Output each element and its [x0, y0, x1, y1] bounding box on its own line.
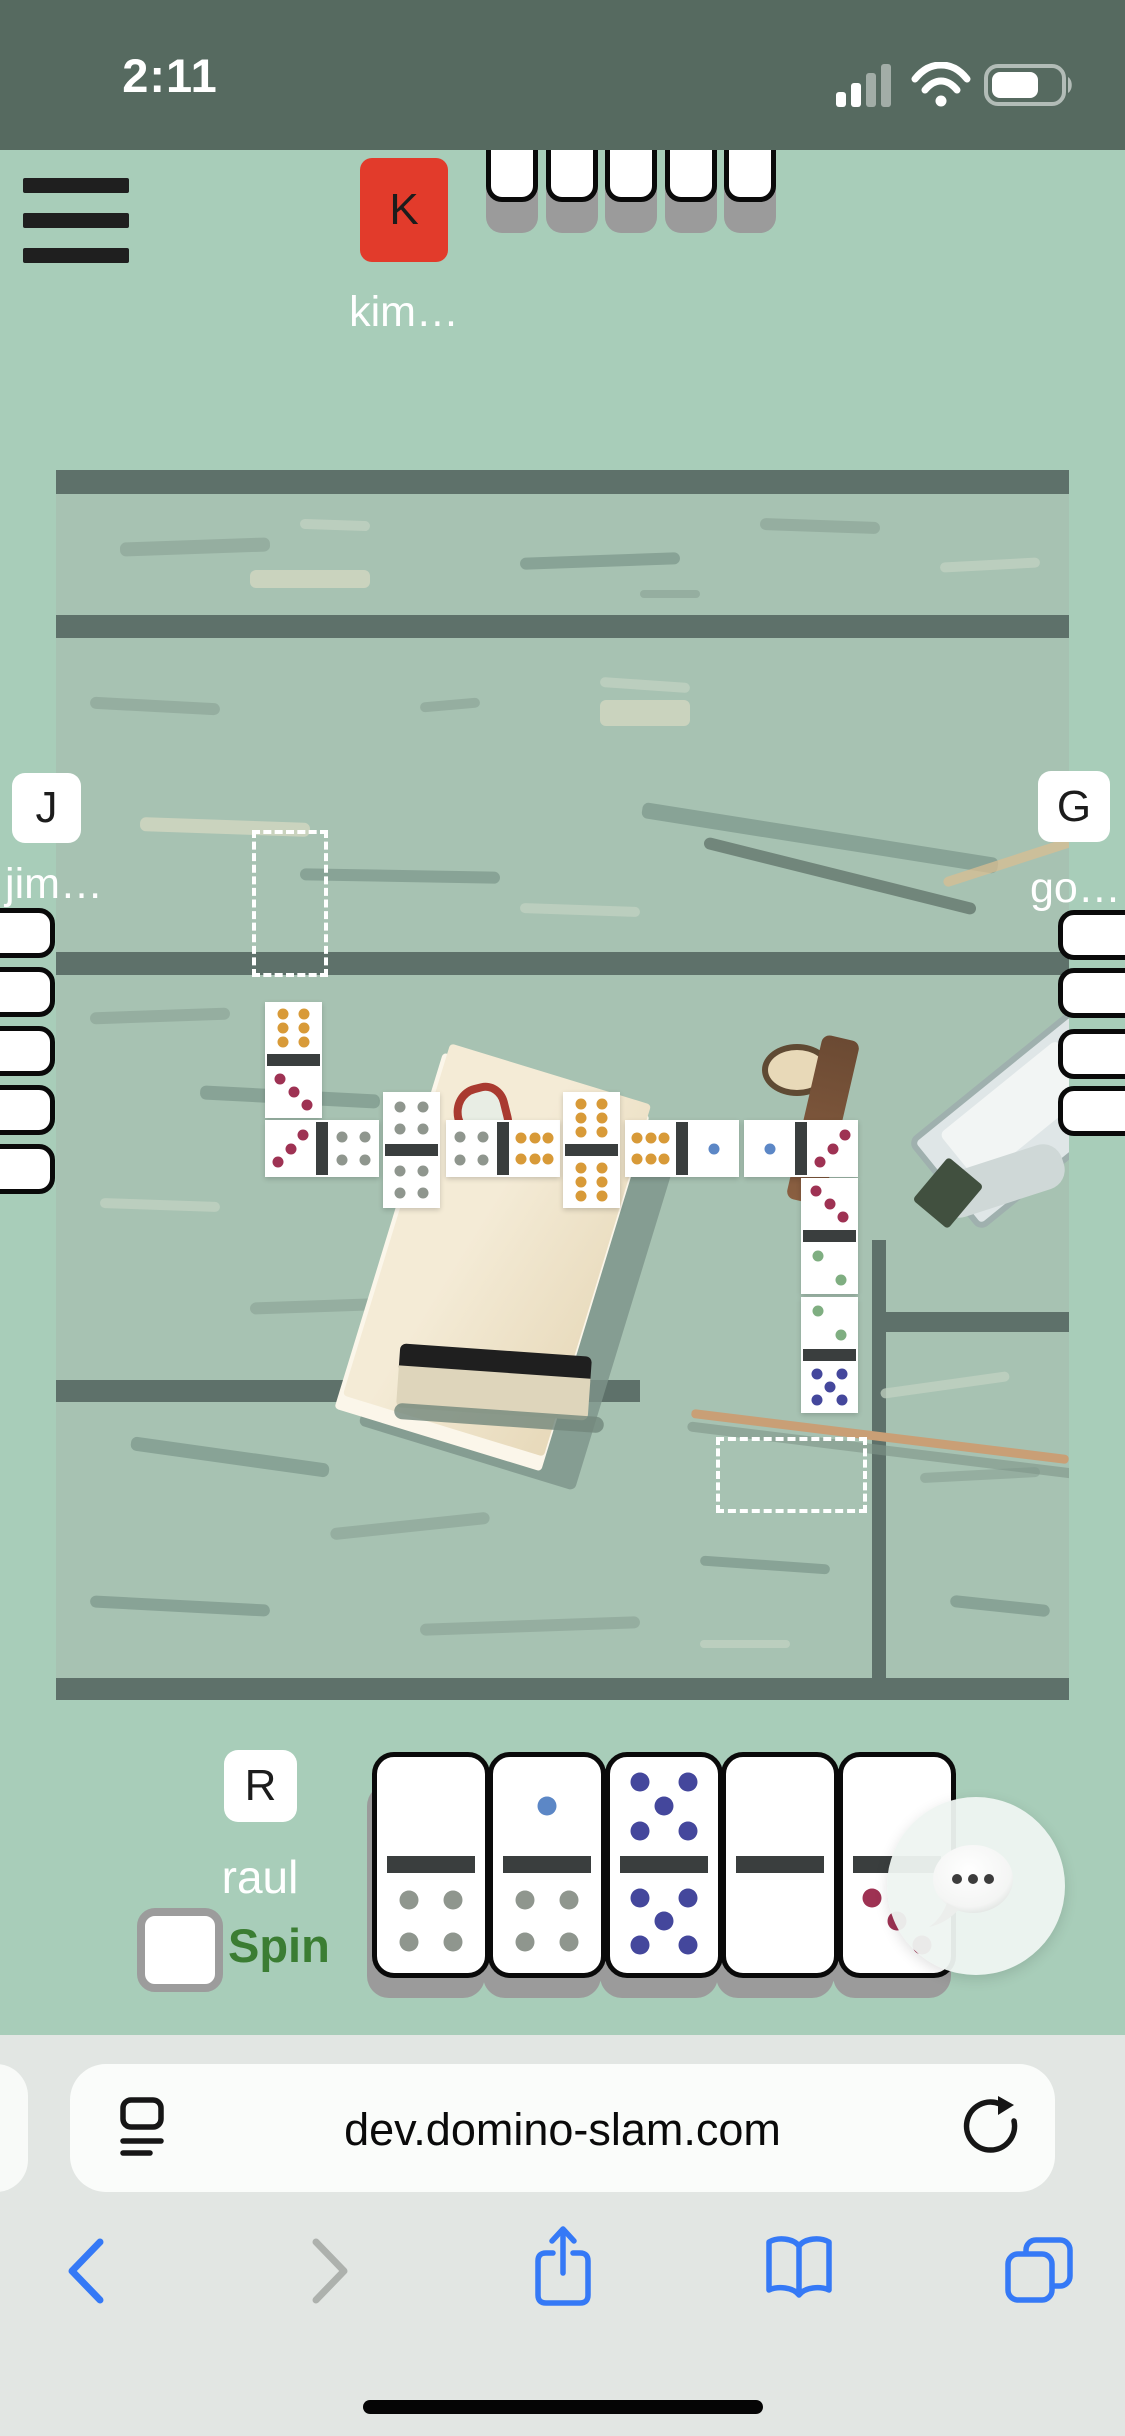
- pip: [285, 1143, 296, 1154]
- opponent-tile-back-go: [1058, 910, 1125, 960]
- pip: [298, 1130, 309, 1141]
- avatar-go-initial: G: [1057, 782, 1091, 832]
- home-indicator[interactable]: [363, 2400, 763, 2414]
- domino-divider: [316, 1122, 328, 1175]
- pip: [659, 1133, 670, 1144]
- wood-streak: [420, 697, 481, 712]
- board-domino-1-3: [744, 1120, 858, 1177]
- wood-streak: [420, 1616, 640, 1636]
- pip: [538, 1797, 557, 1816]
- bookmarks-button[interactable]: [764, 2235, 834, 2303]
- plank-gap: [56, 615, 1069, 638]
- pip: [395, 1124, 406, 1135]
- pip: [814, 1156, 825, 1167]
- opponent-tile-back-jim: [0, 908, 55, 958]
- player-name-jim: jim…: [0, 860, 114, 909]
- pip: [529, 1133, 540, 1144]
- hamburger-bar: [23, 213, 129, 228]
- pip: [543, 1153, 554, 1164]
- opponent-tile-back-jim: [0, 1085, 55, 1135]
- pip: [576, 1162, 587, 1173]
- pip: [529, 1153, 540, 1164]
- avatar-go: G: [1038, 771, 1110, 842]
- avatar-jim-initial: J: [36, 783, 58, 833]
- pip: [278, 1037, 289, 1048]
- avatar-jim: J: [12, 773, 81, 843]
- domino-divider: [736, 1856, 824, 1873]
- wood-streak: [90, 1008, 230, 1025]
- wood-streak: [880, 1371, 1010, 1399]
- pip: [764, 1143, 775, 1154]
- battery-icon: [984, 62, 1076, 108]
- board-domino-6-1: [625, 1120, 739, 1177]
- domino-divider: [267, 1054, 320, 1066]
- domino-divider: [803, 1230, 856, 1242]
- share-button[interactable]: [532, 2225, 594, 2309]
- wood-streak: [90, 697, 220, 716]
- pip: [596, 1162, 607, 1173]
- pip: [631, 1153, 642, 1164]
- pip: [645, 1133, 656, 1144]
- pip: [400, 1932, 419, 1951]
- hand-tile-0-0[interactable]: [721, 1752, 839, 1978]
- pip: [631, 1772, 650, 1791]
- speech-bubble-icon: [923, 1841, 1027, 1937]
- wood-streak: [600, 677, 690, 693]
- opponent-tile-back-jim: [0, 1026, 55, 1076]
- pip: [455, 1132, 466, 1143]
- pip: [655, 1797, 674, 1816]
- plank-seam-vertical: [872, 1240, 886, 1678]
- wood-streak: [600, 700, 690, 726]
- pip: [443, 1891, 462, 1910]
- pip: [278, 1023, 289, 1034]
- board-domino-6-6: [563, 1092, 620, 1208]
- pip: [417, 1101, 428, 1112]
- pip: [813, 1251, 824, 1262]
- board-domino-4-4: [383, 1092, 440, 1208]
- wood-streak: [940, 557, 1040, 572]
- hamburger-menu-button[interactable]: [0, 160, 150, 280]
- domino-divider: [620, 1856, 708, 1873]
- pip: [837, 1395, 848, 1406]
- pip: [631, 1888, 650, 1907]
- domino-drop-zone[interactable]: [252, 830, 328, 977]
- pip: [678, 1935, 697, 1954]
- pip: [645, 1153, 656, 1164]
- wood-streak: [640, 590, 700, 598]
- board-domino-6-3: [265, 1002, 322, 1118]
- wood-streak: [300, 519, 370, 531]
- hand-tile-0-4[interactable]: [372, 1752, 490, 1978]
- pip: [515, 1133, 526, 1144]
- back-button[interactable]: [62, 2237, 110, 2305]
- wifi-icon: [911, 62, 971, 108]
- pip: [477, 1132, 488, 1143]
- game-board: [56, 470, 1069, 1700]
- pip: [576, 1191, 587, 1202]
- pip: [840, 1130, 851, 1141]
- pip: [631, 1133, 642, 1144]
- domino-divider: [497, 1122, 509, 1175]
- cellular-signal-icon: [836, 62, 898, 108]
- wood-streak: [760, 518, 880, 534]
- pip: [824, 1382, 835, 1393]
- domino-divider: [503, 1856, 591, 1873]
- pip: [278, 1008, 289, 1019]
- domino-divider: [795, 1122, 807, 1175]
- pip: [811, 1395, 822, 1406]
- wood-streak: [700, 1555, 830, 1574]
- spin-checkbox[interactable]: [137, 1908, 223, 1992]
- board-bottom-edge: [56, 1678, 1069, 1700]
- pip: [395, 1188, 406, 1199]
- pip: [596, 1098, 607, 1109]
- wood-streak: [520, 552, 680, 570]
- pip: [827, 1143, 838, 1154]
- reload-icon[interactable]: [960, 2096, 1022, 2160]
- hand-tile-1-4[interactable]: [488, 1752, 606, 1978]
- player-name-kim: kim…: [330, 288, 478, 337]
- pip: [559, 1932, 578, 1951]
- pip: [417, 1165, 428, 1176]
- wood-streak: [300, 868, 500, 883]
- pip: [455, 1154, 466, 1165]
- pip: [576, 1113, 587, 1124]
- previous-tab-peek[interactable]: [0, 2064, 28, 2192]
- pip: [576, 1098, 587, 1109]
- pip: [837, 1212, 848, 1223]
- wood-streak: [120, 537, 270, 556]
- domino-divider: [385, 1144, 438, 1156]
- pip: [359, 1132, 370, 1143]
- pip: [576, 1127, 587, 1138]
- pip: [596, 1127, 607, 1138]
- pip: [596, 1191, 607, 1202]
- board-domino-4-6: [446, 1120, 560, 1177]
- wood-streak: [700, 1640, 790, 1648]
- status-bar: 2:11: [0, 0, 1125, 150]
- pip: [631, 1935, 650, 1954]
- avatar-raul-initial: R: [245, 1761, 277, 1811]
- pip: [417, 1188, 428, 1199]
- pip: [596, 1113, 607, 1124]
- wood-streak: [520, 903, 640, 917]
- domino-divider: [565, 1144, 618, 1156]
- wood-streak: [90, 1595, 270, 1616]
- chat-button[interactable]: [887, 1797, 1065, 1975]
- url-bar[interactable]: dev.domino-slam.com: [70, 2064, 1055, 2192]
- board-top-edge: [56, 470, 1069, 494]
- safari-toolbar: dev.domino-slam.com: [0, 2035, 1125, 2436]
- pip: [298, 1008, 309, 1019]
- pip: [631, 1821, 650, 1840]
- status-time: 2:11: [100, 48, 240, 103]
- pip: [288, 1087, 299, 1098]
- tabs-button[interactable]: [1004, 2237, 1074, 2303]
- opponent-tile-back-jim: [0, 1144, 55, 1194]
- wood-streak: [250, 570, 370, 588]
- pip: [863, 1888, 882, 1907]
- avatar-raul: R: [224, 1750, 297, 1822]
- opponent-tile-back-go: [1058, 1029, 1125, 1079]
- pip: [576, 1177, 587, 1188]
- player-name-raul: raul: [180, 1850, 340, 1904]
- opponent-tile-back-jim: [0, 967, 55, 1017]
- wood-streak: [100, 1198, 220, 1212]
- opponent-tile-back-go: [1058, 968, 1125, 1018]
- spin-label: Spin: [228, 1918, 330, 1973]
- pip: [516, 1932, 535, 1951]
- pip: [655, 1912, 674, 1931]
- plank-gap: [872, 1312, 1069, 1332]
- domino-divider: [803, 1349, 856, 1361]
- wood-streak: [130, 1436, 330, 1478]
- pip: [835, 1274, 846, 1285]
- pip: [596, 1177, 607, 1188]
- forward-button[interactable]: [306, 2237, 354, 2305]
- url-text[interactable]: dev.domino-slam.com: [70, 2104, 1055, 2156]
- board-domino-3-2: [801, 1178, 858, 1294]
- pip: [417, 1124, 428, 1135]
- wood-streak: [330, 1512, 490, 1541]
- board-domino-2-5: [801, 1297, 858, 1413]
- pip: [811, 1369, 822, 1380]
- pip: [708, 1143, 719, 1154]
- pip: [395, 1165, 406, 1176]
- pip: [559, 1891, 578, 1910]
- pip: [813, 1306, 824, 1317]
- pip: [400, 1891, 419, 1910]
- pip: [835, 1329, 846, 1340]
- pip: [337, 1132, 348, 1143]
- pip: [659, 1153, 670, 1164]
- pip: [543, 1133, 554, 1144]
- hand-tile-5-5[interactable]: [605, 1752, 723, 1978]
- wood-streak: [641, 802, 999, 874]
- pip: [678, 1888, 697, 1907]
- phone-screen: K kim… J jim… G go… R raul Spin 2:11: [0, 0, 1125, 2436]
- hamburger-bar: [23, 248, 129, 263]
- avatar-kim-initial: K: [389, 185, 418, 235]
- pip: [359, 1154, 370, 1165]
- domino-divider: [676, 1122, 688, 1175]
- player-name-go: go…: [1030, 864, 1125, 913]
- board-domino-3-4: [265, 1120, 379, 1177]
- pip: [298, 1023, 309, 1034]
- pip: [678, 1772, 697, 1791]
- pip: [678, 1821, 697, 1840]
- domino-drop-zone[interactable]: [716, 1437, 867, 1513]
- pip: [443, 1932, 462, 1951]
- avatar-kim: K: [360, 158, 448, 262]
- pip: [516, 1891, 535, 1910]
- pip: [395, 1101, 406, 1112]
- wood-streak: [950, 1595, 1051, 1617]
- domino-divider: [387, 1856, 475, 1873]
- pip: [272, 1156, 283, 1167]
- hamburger-bar: [23, 178, 129, 193]
- pip: [824, 1199, 835, 1210]
- pip: [477, 1154, 488, 1165]
- pip: [515, 1153, 526, 1164]
- plank-gap: [56, 952, 1069, 975]
- opponent-tile-back-go: [1058, 1086, 1125, 1136]
- pip: [301, 1100, 312, 1111]
- pip: [837, 1369, 848, 1380]
- pip: [811, 1186, 822, 1197]
- pip: [337, 1154, 348, 1165]
- pip: [298, 1037, 309, 1048]
- pip: [275, 1074, 286, 1085]
